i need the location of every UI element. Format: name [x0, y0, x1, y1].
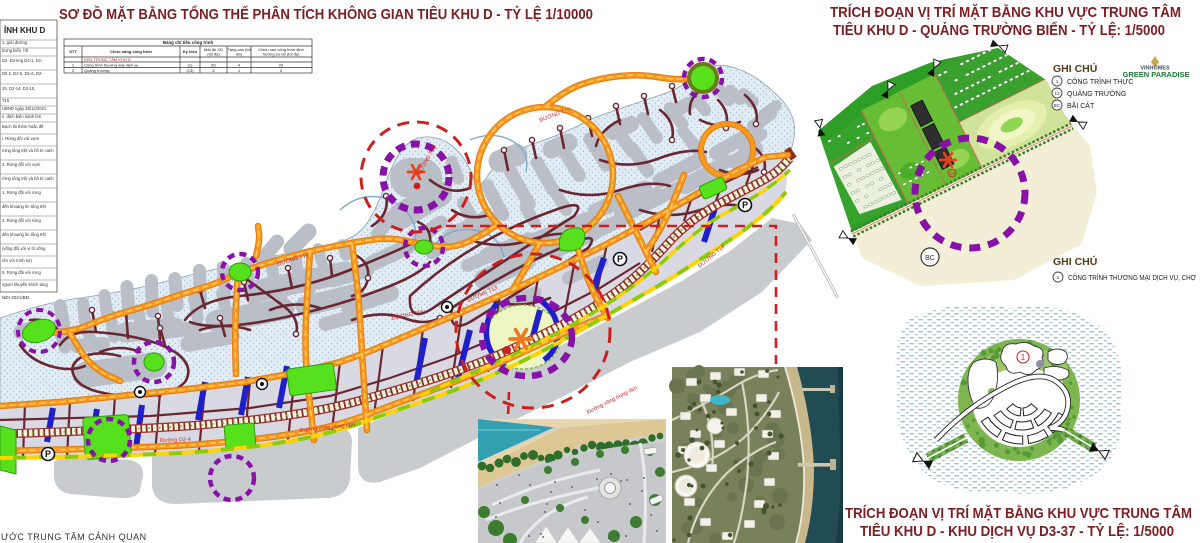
- svg-text:(13): (13): [186, 68, 194, 73]
- svg-text:ƯỚC TRUNG TÂM CẢNH QUAN: ƯỚC TRUNG TÂM CẢNH QUAN: [1, 531, 147, 542]
- svg-text:rừng tổng trệt và hồ tri canh: rừng tổng trệt và hồ tri canh: [2, 176, 54, 181]
- svg-text:20: 20: [279, 63, 284, 68]
- svg-text:Đường D2-4: Đường D2-4: [160, 437, 191, 444]
- svg-text:UBND ngày 28/12/2021: UBND ngày 28/12/2021: [2, 106, 47, 111]
- svg-text:ỈNH KHU D: ỈNH KHU D: [4, 26, 46, 35]
- svg-text:trưng biển, hồ: trưng biển, hồ: [2, 48, 29, 53]
- svg-text:5. Rừng đồi với rừng: 5. Rừng đồi với rừng: [2, 270, 42, 275]
- svg-text:1. Rừng đồi với rừng: 1. Rừng đồi với rừng: [2, 190, 42, 195]
- svg-text:GREEN PARADISE: GREEN PARADISE: [1123, 70, 1190, 79]
- svg-text:Bạch lòi thêm hoặc đề: Bạch lòi thêm hoặc đề: [2, 124, 44, 129]
- svg-text:(1): (1): [188, 63, 194, 68]
- svg-text:13: 13: [1054, 91, 1060, 96]
- svg-text:Quảng trường: Quảng trường: [84, 68, 109, 73]
- svg-text:BC: BC: [925, 255, 935, 262]
- svg-text:CÔNG TRÌNH THƯƠNG MẠI DỊCH VỤ,: CÔNG TRÌNH THƯƠNG MẠI DỊCH VỤ, CHỢ: [1068, 273, 1196, 282]
- svg-text:KHU TRUNG TÂM KHU D: KHU TRUNG TÂM KHU D: [84, 57, 131, 62]
- svg-text:Ký hiệu: Ký hiệu: [183, 49, 198, 54]
- svg-text:TIÊU KHU D - KHU DỊCH VỤ D3-37: TIÊU KHU D - KHU DỊCH VỤ D3-37 - TỶ LỆ: …: [860, 522, 1174, 540]
- svg-text:nguời khuyến khích tùng: nguời khuyến khích tùng: [2, 282, 48, 287]
- svg-text:TRÍCH ĐOẠN VỊ TRÍ MẶT BẰNG KHU: TRÍCH ĐOẠN VỊ TRÍ MẶT BẰNG KHU VỰC TRUNG…: [845, 504, 1192, 522]
- svg-text:rên với trình sơ): rên với trình sơ): [2, 258, 33, 263]
- svg-text:GHI CHÚ: GHI CHÚ: [1053, 255, 1097, 268]
- svg-text:NĐ! 2021/BĐ.: NĐ! 2021/BĐ.: [2, 295, 30, 300]
- svg-text:TRÍCH ĐOẠN VỊ TRÍ MẶT BẰNG KHU: TRÍCH ĐOẠN VỊ TRÍ MẶT BẰNG KHU VỰC TRUNG…: [830, 3, 1181, 21]
- svg-text:50: 50: [211, 63, 216, 68]
- svg-text:QUẢNG TRƯỜNG: QUẢNG TRƯỜNG: [1067, 89, 1126, 98]
- svg-text:3. Rừng đồi với rừng: 3. Rừng đồi với rừng: [2, 218, 42, 223]
- svg-text:đa): đa): [236, 52, 242, 57]
- svg-text:(vống đồi với vị trí sống: (vống đồi với vị trí sống: [2, 246, 46, 251]
- svg-text:BC: BC: [1054, 103, 1061, 108]
- svg-text:P: P: [742, 200, 748, 210]
- svg-text:3. Rừng đồi với vựm: 3. Rừng đồi với vựm: [2, 162, 41, 167]
- svg-text:15, D2-14, D2-15,: 15, D2-14, D2-15,: [2, 86, 35, 91]
- svg-text:1: 1: [1021, 353, 1026, 362]
- svg-text:GHI CHÚ: GHI CHÚ: [1053, 62, 1097, 75]
- svg-text:i. Rừng đồi với vựrn: i. Rừng đồi với vựrn: [2, 136, 40, 141]
- svg-text:đến khoang lìn tổng trệt: đến khoang lìn tổng trệt: [2, 232, 47, 237]
- svg-text:hướng sơ bộ (tối đa): hướng sơ bộ (tối đa): [263, 52, 300, 57]
- svg-text:P: P: [45, 449, 51, 459]
- svg-text:đến khoang lìn tổng trệt: đến khoang lìn tổng trệt: [2, 204, 47, 209]
- svg-text:1. giới đường: 1. giới đường: [2, 40, 28, 45]
- svg-text:1: 1: [1056, 79, 1059, 84]
- svg-text:Chức năng công trình: Chức năng công trình: [110, 49, 152, 54]
- svg-text:P: P: [617, 254, 623, 264]
- svg-text:SƠ ĐỒ MẶT BẰNG TỔNG THỂ PHÂN T: SƠ ĐỒ MẶT BẰNG TỔNG THỂ PHÂN TÍCH KHÔNG …: [59, 5, 593, 23]
- svg-text:n. định biên hành lớn: n. định biên hành lớn: [2, 114, 42, 119]
- svg-text:D2- Đường D2-1, D1-: D2- Đường D2-1, D1-: [2, 58, 43, 63]
- svg-text:(tối đa): (tối đa): [207, 52, 220, 57]
- svg-text:D5 2, D2-5, D1-6, D2-: D5 2, D2-5, D1-6, D2-: [2, 71, 43, 76]
- svg-text:BÃI CÁT: BÃI CÁT: [1067, 101, 1095, 110]
- svg-text:13: 13: [949, 171, 955, 176]
- svg-text:rừng tổng trệt và hồ tri canh: rừng tổng trệt và hồ tri canh: [2, 148, 54, 153]
- svg-text:1: 1: [1057, 275, 1060, 280]
- svg-text:T15: T15: [2, 98, 10, 103]
- svg-text:Bảng chỉ tiêu công trình: Bảng chỉ tiêu công trình: [163, 40, 214, 45]
- svg-text:STT: STT: [69, 49, 77, 54]
- svg-text:Công trình thương mại dịch vụ: Công trình thương mại dịch vụ: [84, 63, 138, 68]
- svg-text:TIÊU KHU D - QUẢNG TRƯỜNG BIỂN: TIÊU KHU D - QUẢNG TRƯỜNG BIỂN - TỶ LỆ: …: [833, 21, 1165, 39]
